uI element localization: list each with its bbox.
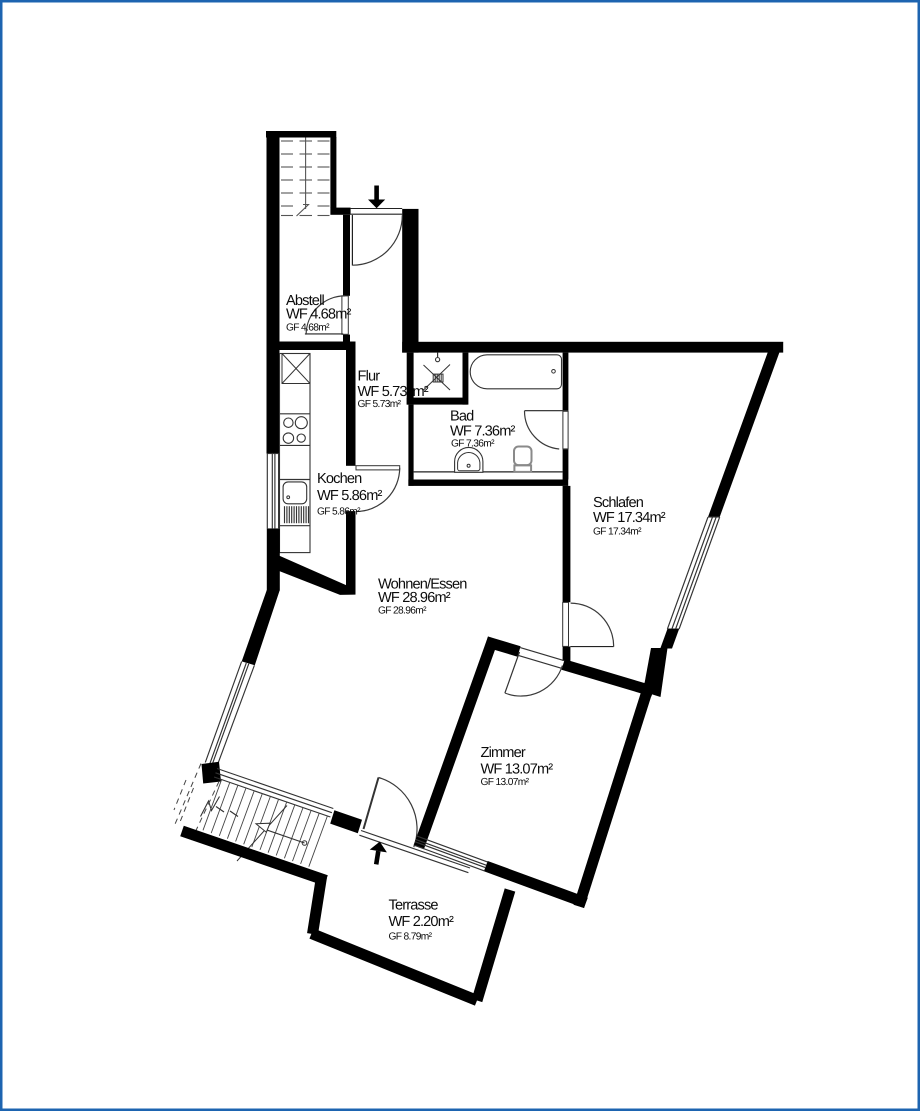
svg-text:Flur: Flur: [358, 369, 381, 385]
svg-text:m²: m²: [413, 384, 429, 400]
svg-text:GF 17.34m²: GF 17.34m²: [593, 527, 642, 538]
svg-text:GF 28.96m²: GF 28.96m²: [378, 606, 427, 617]
svg-text:GF 8.79m²: GF 8.79m²: [389, 932, 433, 943]
svg-text:WF 5.86m²: WF 5.86m²: [317, 488, 383, 504]
svg-text:WF 7.36m²: WF 7.36m²: [450, 424, 516, 440]
svg-text:GF 5.73m²: GF 5.73m²: [358, 399, 402, 410]
svg-text:Kochen: Kochen: [317, 471, 362, 487]
svg-text:Zimmer: Zimmer: [481, 745, 526, 761]
svg-text:WF 17.34m²: WF 17.34m²: [593, 510, 666, 526]
svg-text:GF 4.68m²: GF 4.68m²: [286, 323, 330, 334]
svg-text:Terrasse: Terrasse: [389, 898, 439, 914]
svg-text:WF 28.96m²: WF 28.96m²: [378, 590, 451, 606]
svg-text:GF 13.07m²: GF 13.07m²: [481, 777, 530, 788]
svg-text:WF 2.20m²: WF 2.20m²: [389, 914, 455, 930]
svg-text:Bad: Bad: [450, 409, 474, 425]
svg-text:GF 5.86m²: GF 5.86m²: [317, 507, 361, 518]
svg-text:WF 4.68m²: WF 4.68m²: [286, 307, 352, 323]
svg-text:WF 5.73: WF 5.73: [358, 384, 408, 400]
svg-text:GF 7.36m²: GF 7.36m²: [451, 439, 495, 450]
svg-text:Schlafen: Schlafen: [593, 495, 644, 511]
svg-text:WF 13.07m²: WF 13.07m²: [481, 762, 554, 778]
